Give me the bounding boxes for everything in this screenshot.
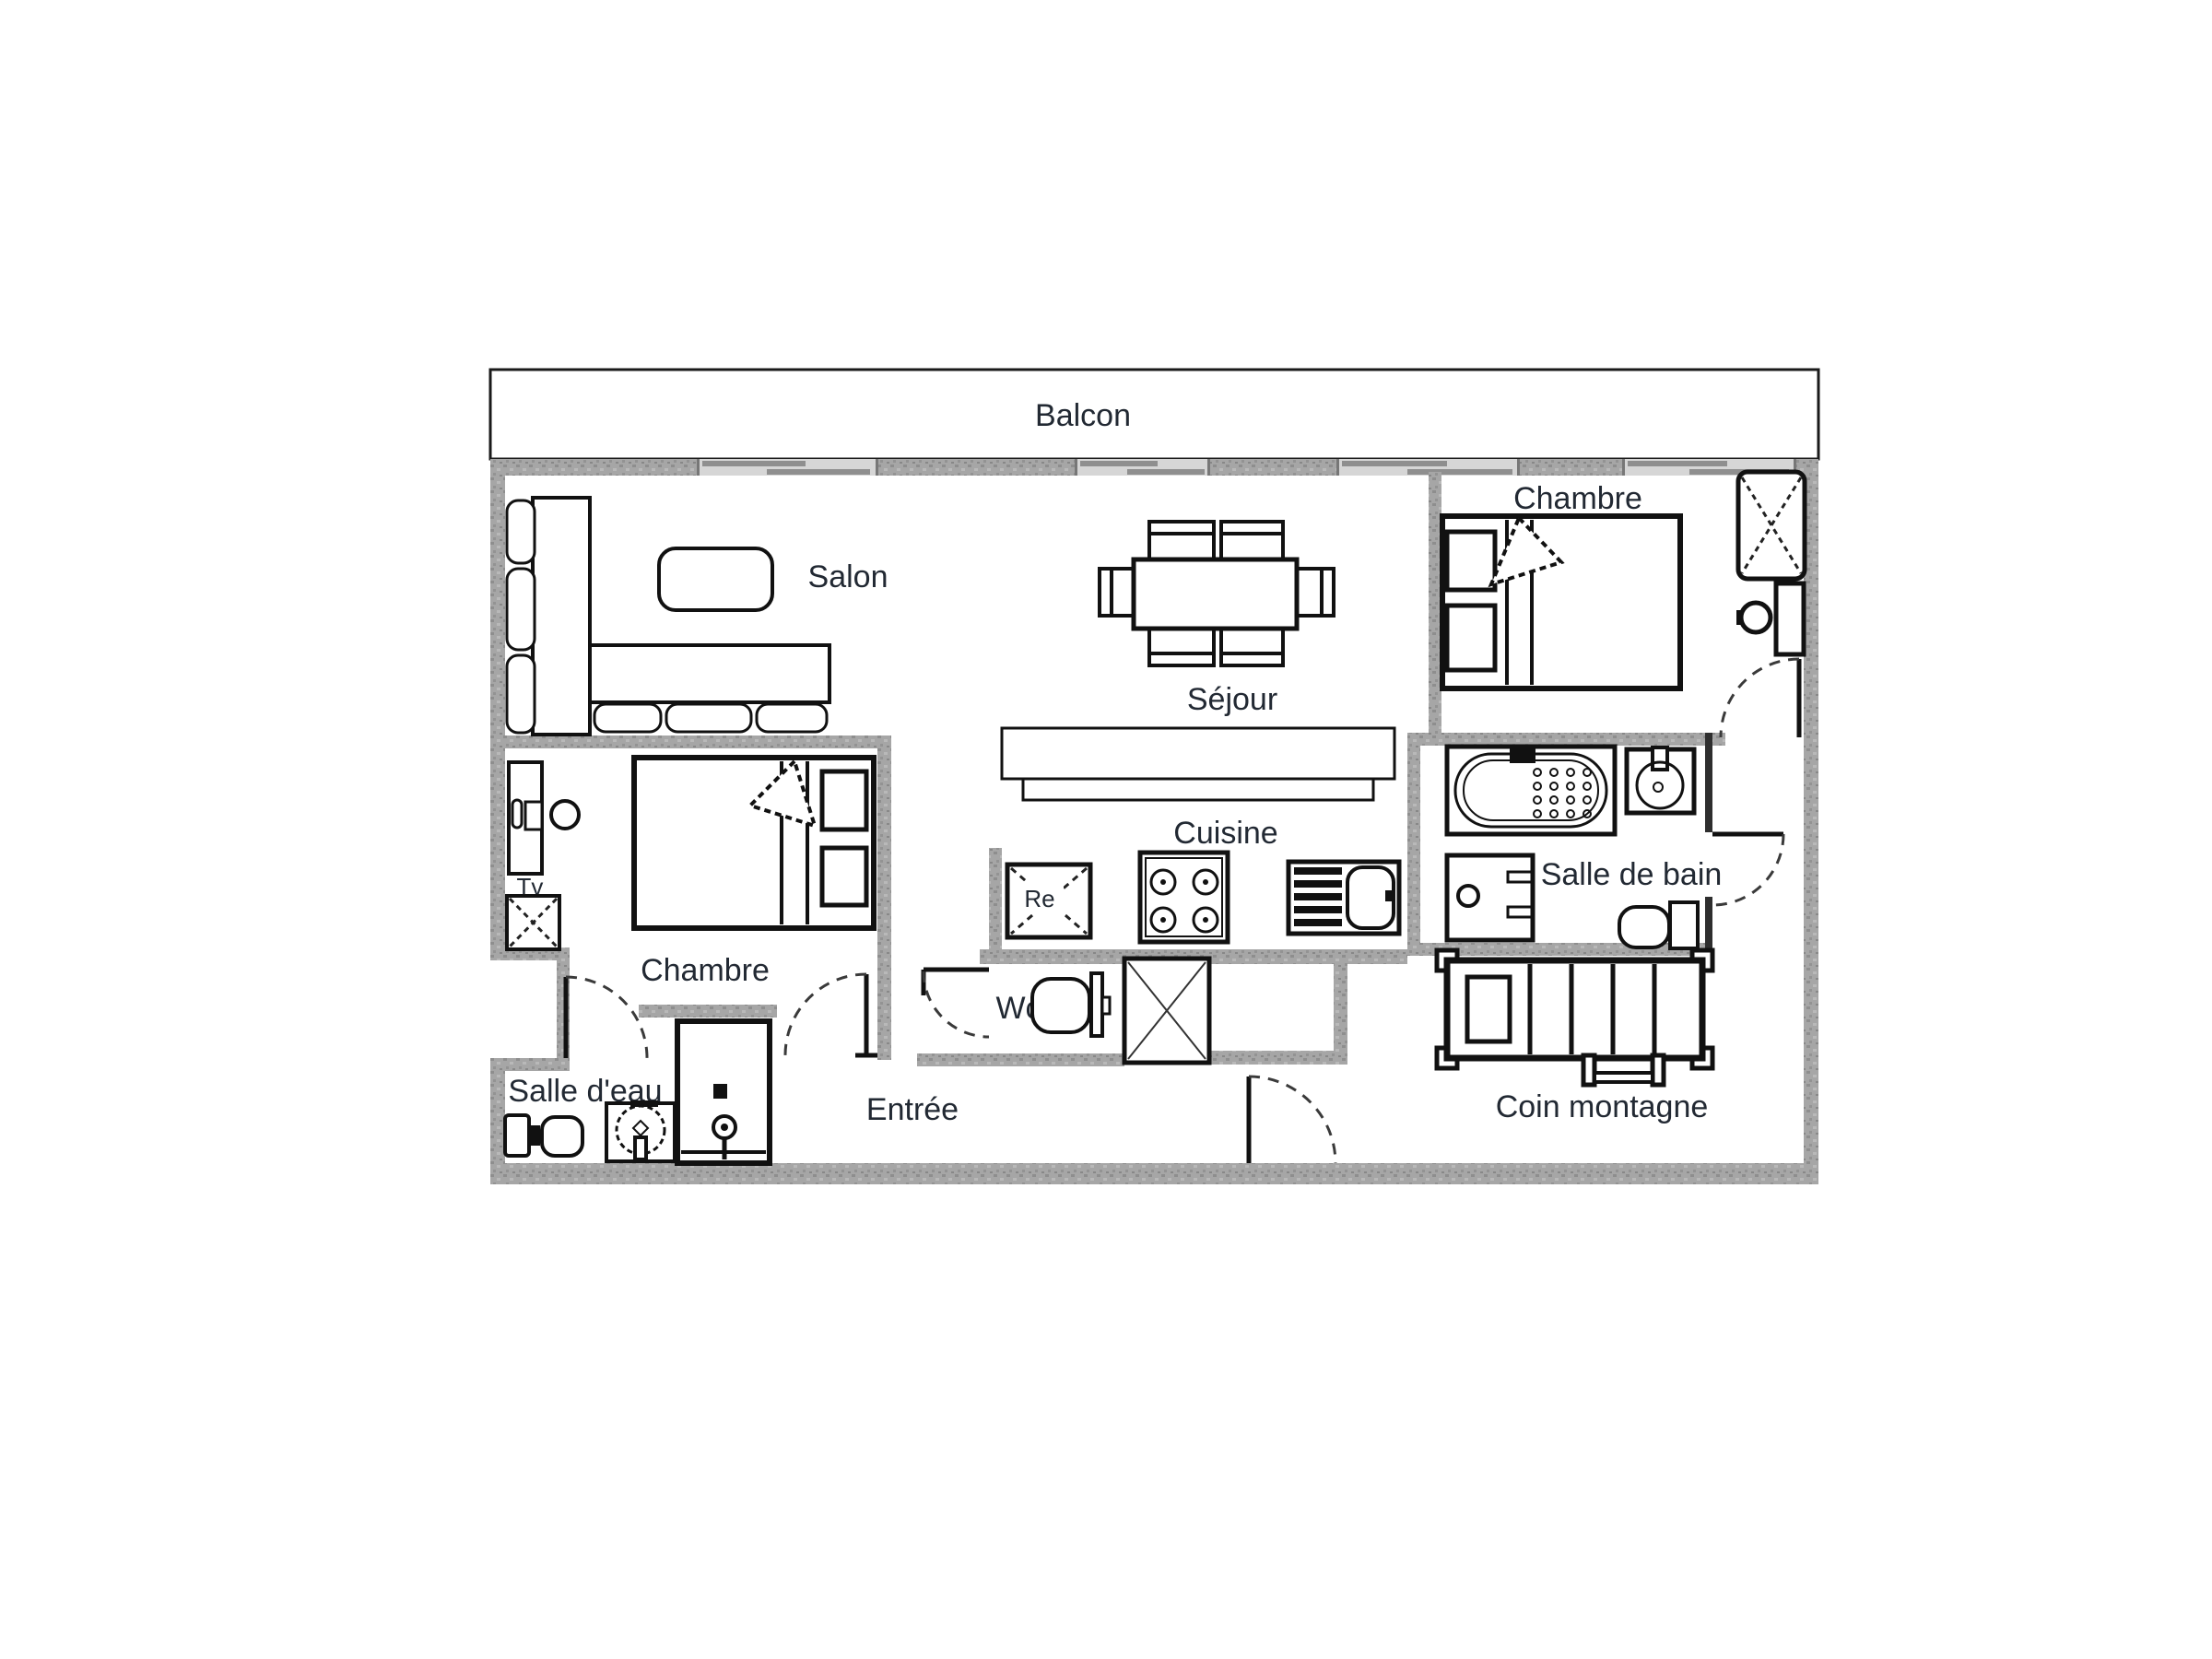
sofa-back bbox=[590, 645, 829, 702]
sofa-back bbox=[533, 498, 590, 735]
window-wall bbox=[490, 459, 1818, 476]
sofa-cushion bbox=[594, 704, 661, 732]
wall-segment bbox=[1519, 459, 1624, 476]
sofa-cushion bbox=[507, 500, 535, 563]
bottom-wall bbox=[490, 1163, 1818, 1184]
toilet-tank bbox=[505, 1115, 529, 1156]
salle-de-bain-left-wall bbox=[1407, 733, 1420, 956]
double-bed bbox=[634, 758, 874, 928]
sejour-label: Séjour bbox=[1187, 682, 1277, 717]
window-pane-icon bbox=[1628, 461, 1727, 466]
shower bbox=[677, 1021, 770, 1163]
hall-salle-d-eau-wall bbox=[639, 1005, 777, 1018]
sofa-cushion bbox=[666, 704, 751, 732]
pillow bbox=[1447, 606, 1495, 670]
toilet bbox=[505, 1115, 582, 1156]
pillow bbox=[822, 771, 866, 829]
dining-chair bbox=[1221, 629, 1283, 665]
closet-entree bbox=[1124, 959, 1209, 1063]
coffee-table bbox=[659, 548, 772, 610]
chambre-sud-right-wall bbox=[877, 735, 891, 1060]
window-divider bbox=[697, 459, 700, 476]
dining-chair bbox=[1221, 522, 1283, 559]
closet bbox=[507, 896, 559, 949]
washing-machine bbox=[1447, 855, 1533, 940]
alcove-bottom-wall bbox=[1209, 1051, 1347, 1065]
kitchen-sink bbox=[1288, 862, 1399, 934]
toilet-tank bbox=[1670, 902, 1698, 948]
window-pane-icon bbox=[702, 461, 806, 466]
wall-segment bbox=[490, 459, 699, 476]
bathtub bbox=[1447, 745, 1615, 834]
dining-chair bbox=[1100, 569, 1134, 616]
dining-chair bbox=[1149, 522, 1214, 559]
refrigerator: Re bbox=[1007, 865, 1090, 937]
toilet bbox=[1619, 902, 1698, 948]
window-pane-icon bbox=[1127, 469, 1205, 475]
wardrobe bbox=[1738, 472, 1805, 579]
toilet-tank bbox=[1091, 973, 1102, 1036]
sofa-cushion bbox=[507, 655, 535, 733]
entree-label: Entrée bbox=[866, 1092, 959, 1127]
left-wall-upper bbox=[490, 459, 505, 960]
window-divider bbox=[1517, 459, 1520, 476]
faucet-icon bbox=[1653, 747, 1667, 770]
refrigerator-label: Re bbox=[1024, 885, 1054, 912]
floor-plan: Balcon bbox=[0, 0, 2212, 1659]
desk bbox=[509, 762, 542, 874]
sofa-cushion bbox=[507, 569, 535, 650]
salle-de-bain-right-wall-upper bbox=[1705, 733, 1712, 832]
coin-montagne-label: Coin montagne bbox=[1496, 1089, 1709, 1124]
faucet-icon bbox=[635, 1137, 646, 1159]
wc-bottom-wall bbox=[917, 1053, 1124, 1066]
chambre-nord-salle-de-bain-wall bbox=[1407, 733, 1725, 746]
window-divider bbox=[1075, 459, 1077, 476]
background bbox=[0, 0, 2212, 1659]
washbasin bbox=[606, 1100, 675, 1161]
window-divider bbox=[876, 459, 878, 476]
coin-montagne-left-wall bbox=[1334, 949, 1347, 1065]
washbasin bbox=[1627, 747, 1694, 813]
cuisine-label: Cuisine bbox=[1173, 816, 1277, 851]
double-bed bbox=[1442, 516, 1680, 688]
balcony-outline bbox=[490, 370, 1818, 459]
salon-chambre-wall bbox=[490, 735, 891, 748]
window-divider bbox=[1336, 459, 1339, 476]
kitchen-left-wall bbox=[989, 848, 1002, 960]
dining-table bbox=[1134, 559, 1297, 629]
kitchen-counter-front bbox=[1023, 779, 1373, 800]
stool bbox=[551, 801, 579, 829]
dining-chair bbox=[1149, 629, 1214, 665]
nightstand bbox=[1776, 583, 1804, 654]
window-divider bbox=[1207, 459, 1210, 476]
kitchen-counter bbox=[1002, 728, 1394, 779]
bathtub-tap-icon bbox=[1510, 745, 1535, 763]
stool bbox=[1741, 603, 1771, 632]
window-pane-icon bbox=[767, 469, 870, 475]
salon-label: Salon bbox=[808, 559, 888, 594]
toilet bbox=[1032, 973, 1110, 1036]
wall-segment bbox=[1209, 459, 1338, 476]
chambre-nord-label: Chambre bbox=[1513, 481, 1642, 516]
floor-plan-page: Balcon bbox=[0, 0, 2212, 1659]
salle-de-bain-right-wall-lower bbox=[1705, 897, 1712, 949]
toilet-bowl bbox=[542, 1117, 582, 1156]
window-pane-icon bbox=[1080, 461, 1158, 466]
toilet-bowl bbox=[1619, 907, 1669, 947]
dining-chair bbox=[1297, 569, 1334, 616]
toilet-bowl bbox=[1032, 979, 1089, 1032]
pillow bbox=[1467, 977, 1510, 1041]
sofa-cushion bbox=[757, 704, 827, 732]
chambre-sud-label: Chambre bbox=[641, 953, 770, 988]
window-pane-icon bbox=[1342, 461, 1447, 466]
window-divider bbox=[1622, 459, 1625, 476]
stove bbox=[1140, 853, 1228, 942]
faucet-icon bbox=[1385, 890, 1394, 901]
pillow bbox=[1447, 532, 1495, 590]
pillow bbox=[822, 848, 866, 905]
balcony-label: Balcon bbox=[1035, 398, 1131, 433]
window-pane-icon bbox=[1407, 469, 1512, 475]
salle-de-bain-label: Salle de bain bbox=[1541, 857, 1723, 892]
shower-control-icon bbox=[713, 1084, 727, 1099]
wall-segment bbox=[877, 459, 1077, 476]
sejour-chambre-wall bbox=[1429, 472, 1441, 746]
